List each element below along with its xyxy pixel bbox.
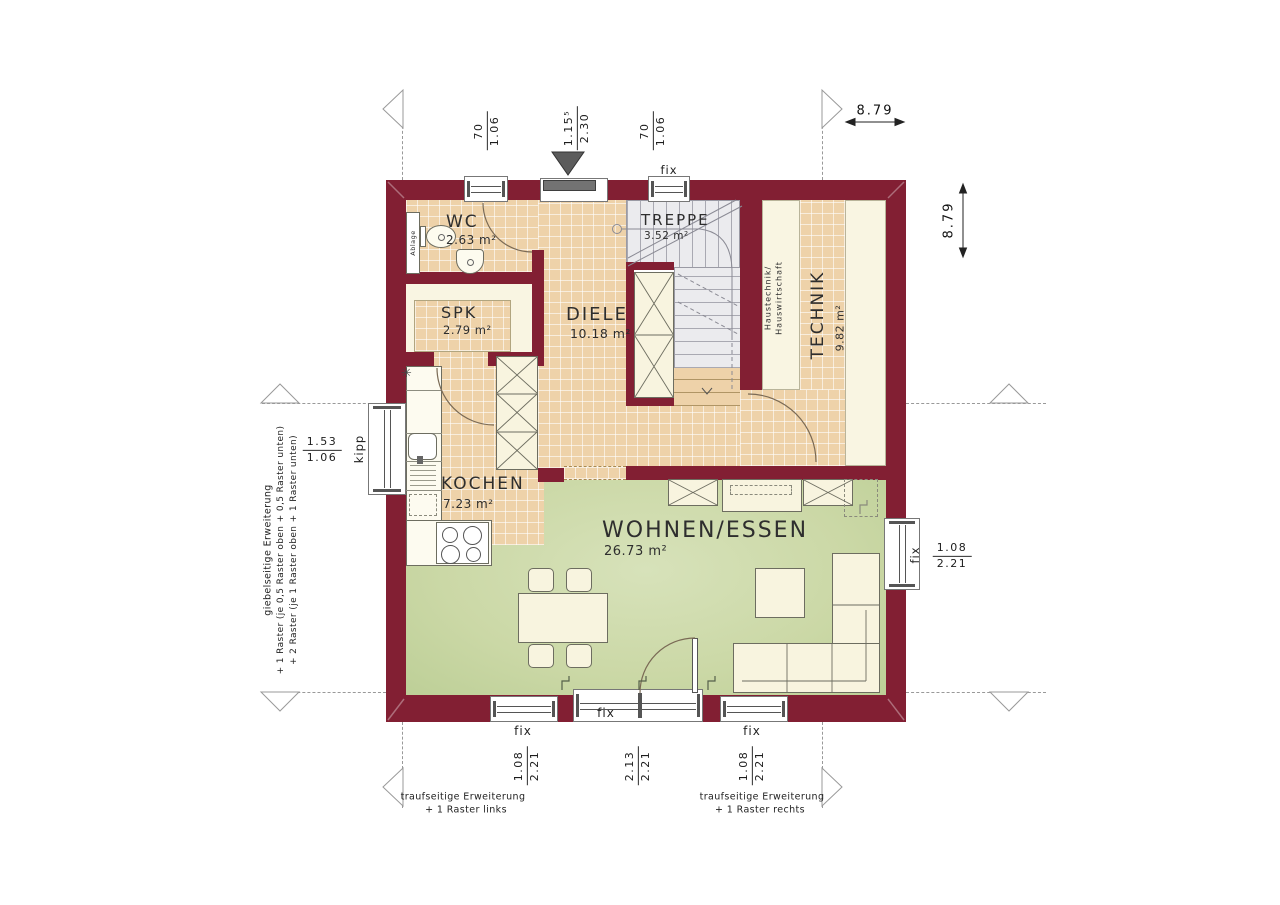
dim-entrance: 1.15⁵2.30 xyxy=(563,110,591,146)
dim-top-right-window: 701.06 xyxy=(639,116,667,147)
entrance-arrow-icon xyxy=(552,152,584,175)
room-label-spk: SPK xyxy=(441,303,477,322)
grid-line-horizontal-lower-left xyxy=(262,692,386,693)
marker-triangle-bottom-right xyxy=(822,768,842,806)
entrance-door-leaf xyxy=(543,180,596,191)
counter-divider xyxy=(406,390,442,391)
room-label-wohnen: WOHNEN/ESSEN xyxy=(602,518,808,543)
room-label-kochen: KOCHEN xyxy=(441,474,525,494)
marker-triangle-left-upper xyxy=(261,384,299,403)
hall-wardrobe xyxy=(634,272,674,398)
dim-total-width: 8.79 xyxy=(857,104,894,119)
dining-chair xyxy=(528,568,554,592)
room-area-technik: 9.82 m² xyxy=(834,305,847,352)
marker-triangle-right-upper xyxy=(990,384,1028,403)
wall-pillar-bottom-right xyxy=(703,695,719,722)
dining-chair xyxy=(566,644,592,668)
annotation-gable-line3: + 2 Raster (je 1 Raster oben + 1 Raster … xyxy=(289,435,299,665)
marker-triangle-left-lower xyxy=(261,692,299,711)
stove-burner xyxy=(466,547,481,562)
fix-label-right: fix xyxy=(908,546,922,563)
wall-pantry-kitchen-left xyxy=(386,352,434,366)
dim-den: 2.21 xyxy=(937,558,968,571)
wall-living-left-stub xyxy=(538,468,564,482)
room-area-wohnen: 26.73 m² xyxy=(604,544,667,559)
stove-burner xyxy=(463,526,482,545)
room-area-kochen: 7.23 m² xyxy=(443,497,494,511)
terrace-window-fix xyxy=(573,689,703,722)
annotation-eaves-right-line2: + 1 Raster rechts xyxy=(715,805,805,816)
dim-num: 70 xyxy=(473,123,486,140)
window-bottom-right-fix xyxy=(720,696,788,722)
grid-line-vertical-left-top xyxy=(402,95,403,180)
window-glass xyxy=(384,410,391,488)
sideboard-drawers xyxy=(722,479,802,512)
coffee-table xyxy=(755,568,805,618)
dim-bottom-middle-window: 2.132.21 xyxy=(624,751,652,782)
sofa-seat xyxy=(733,643,880,693)
annotation-gable-line2: + 1 Raster (je 0,5 Raster oben + 0,5 Ras… xyxy=(276,426,286,675)
window-bottom-left-fix xyxy=(490,696,558,722)
window-glass xyxy=(471,186,501,193)
marker-triangle-right-lower xyxy=(990,692,1028,711)
window-kitchen-kipp xyxy=(368,403,406,495)
grid-line-horizontal-upper-right xyxy=(906,403,1046,404)
dim-den: 1.06 xyxy=(489,116,502,147)
dim-num: 1.15⁵ xyxy=(563,110,576,146)
dim-num: 1.53 xyxy=(307,436,338,449)
dim-num: 2.13 xyxy=(624,751,637,782)
wall-pillar-bottom-left xyxy=(558,695,574,722)
window-stair-fix xyxy=(648,176,690,202)
kitchen-tall-cabinet xyxy=(496,356,538,470)
window-mullion xyxy=(638,693,642,718)
marker-triangle-top-left xyxy=(383,90,403,128)
dining-chair xyxy=(528,644,554,668)
room-area-treppe: 3.52 m² xyxy=(644,230,689,242)
counter-divider xyxy=(406,490,442,491)
window-wc xyxy=(464,176,508,202)
fix-label-bottom-right: fix xyxy=(743,724,761,738)
sink-drainboard xyxy=(410,464,436,486)
dim-num: 70 xyxy=(639,123,652,140)
dim-den: 2.21 xyxy=(754,751,767,782)
dim-right-window: 1.082.21 xyxy=(937,542,968,570)
window-glass xyxy=(497,706,551,713)
technik-note-line2: Hauswirtschaft xyxy=(775,261,784,335)
stair-landing xyxy=(674,368,740,406)
dishwasher-outline xyxy=(409,494,437,516)
dim-num: 1.08 xyxy=(738,751,751,782)
stove-burner xyxy=(442,527,458,543)
grid-line-vertical-right-top xyxy=(822,95,823,180)
wall-stair-technik xyxy=(740,180,762,390)
washbasin-drain-dot xyxy=(467,259,474,266)
terrace-door-leaf xyxy=(692,638,698,693)
window-glass xyxy=(899,525,906,583)
sideboard-drawer-outline xyxy=(730,485,792,495)
counter-divider xyxy=(406,461,442,462)
grid-line-horizontal-lower-right xyxy=(906,692,1046,693)
marker-triangle-top-right xyxy=(822,90,842,128)
stove-burner xyxy=(441,545,460,564)
stair-lower-run xyxy=(674,268,740,368)
wall-stair-stub-bottom xyxy=(626,398,674,406)
dim-num: 1.08 xyxy=(937,542,968,555)
room-label-treppe: TREPPE xyxy=(641,211,710,229)
room-label-technik: TECHNIK xyxy=(808,271,828,360)
floor-plan: WC 2.63 m² SPK 2.79 m² DIELE 10.18 m² TR… xyxy=(0,0,1280,905)
annotation-eaves-left-line1: traufseitige Erweiterung xyxy=(401,792,526,803)
kipp-label-left: kipp xyxy=(352,435,366,463)
wall-wc-hall xyxy=(532,250,544,272)
optional-furniture-outline xyxy=(844,479,878,517)
sofa-chaise xyxy=(832,553,880,645)
dining-chair xyxy=(566,568,592,592)
wall-exterior-right xyxy=(886,180,906,722)
room-area-spk: 2.79 m² xyxy=(443,323,492,337)
annotation-eaves-left-line2: + 1 Raster links xyxy=(425,805,507,816)
annotation-gable-line1: giebelseitige Erweiterung xyxy=(263,484,274,615)
fix-label-bottom-middle: fix xyxy=(597,706,615,720)
passage-opening xyxy=(564,466,626,480)
kitchen-faucet-icon xyxy=(417,456,423,464)
window-glass xyxy=(727,706,781,713)
room-label-diele: DIELE xyxy=(566,304,628,325)
dim-den: 2.30 xyxy=(579,113,592,144)
dining-table xyxy=(518,593,608,643)
dim-den: 2.21 xyxy=(640,751,653,782)
dim-top-left-window: 701.06 xyxy=(473,116,501,147)
dim-den: 2.21 xyxy=(529,751,542,782)
dim-left-window: 1.531.06 xyxy=(307,436,338,464)
floor-below-stair xyxy=(626,406,740,468)
room-label-wc: WC xyxy=(446,212,479,232)
fix-label-bottom-left: fix xyxy=(514,724,532,738)
dim-den: 1.06 xyxy=(307,452,338,465)
dim-num: 1.08 xyxy=(513,751,526,782)
room-area-wc: 2.63 m² xyxy=(446,233,497,247)
fix-label-top: fix xyxy=(660,163,677,177)
sideboard-crossed-left xyxy=(668,479,718,506)
dim-den: 1.06 xyxy=(655,116,668,147)
toilet-flush-dot xyxy=(438,234,445,241)
technik-note-line1: Haustechnik/ xyxy=(764,266,773,330)
asterisk-marker: ✳ xyxy=(401,366,412,381)
annotation-eaves-right-line1: traufseitige Erweiterung xyxy=(700,792,825,803)
wall-living-north xyxy=(626,466,886,480)
window-glass xyxy=(655,186,683,193)
technik-counter-right xyxy=(845,200,886,466)
room-area-diele: 10.18 m² xyxy=(570,326,631,341)
shelf-label-ablage: Ablage xyxy=(409,230,417,256)
dim-bottom-right-window: 1.082.21 xyxy=(738,751,766,782)
dim-bottom-left-window: 1.082.21 xyxy=(513,751,541,782)
dim-total-height: 8.79 xyxy=(942,202,957,239)
